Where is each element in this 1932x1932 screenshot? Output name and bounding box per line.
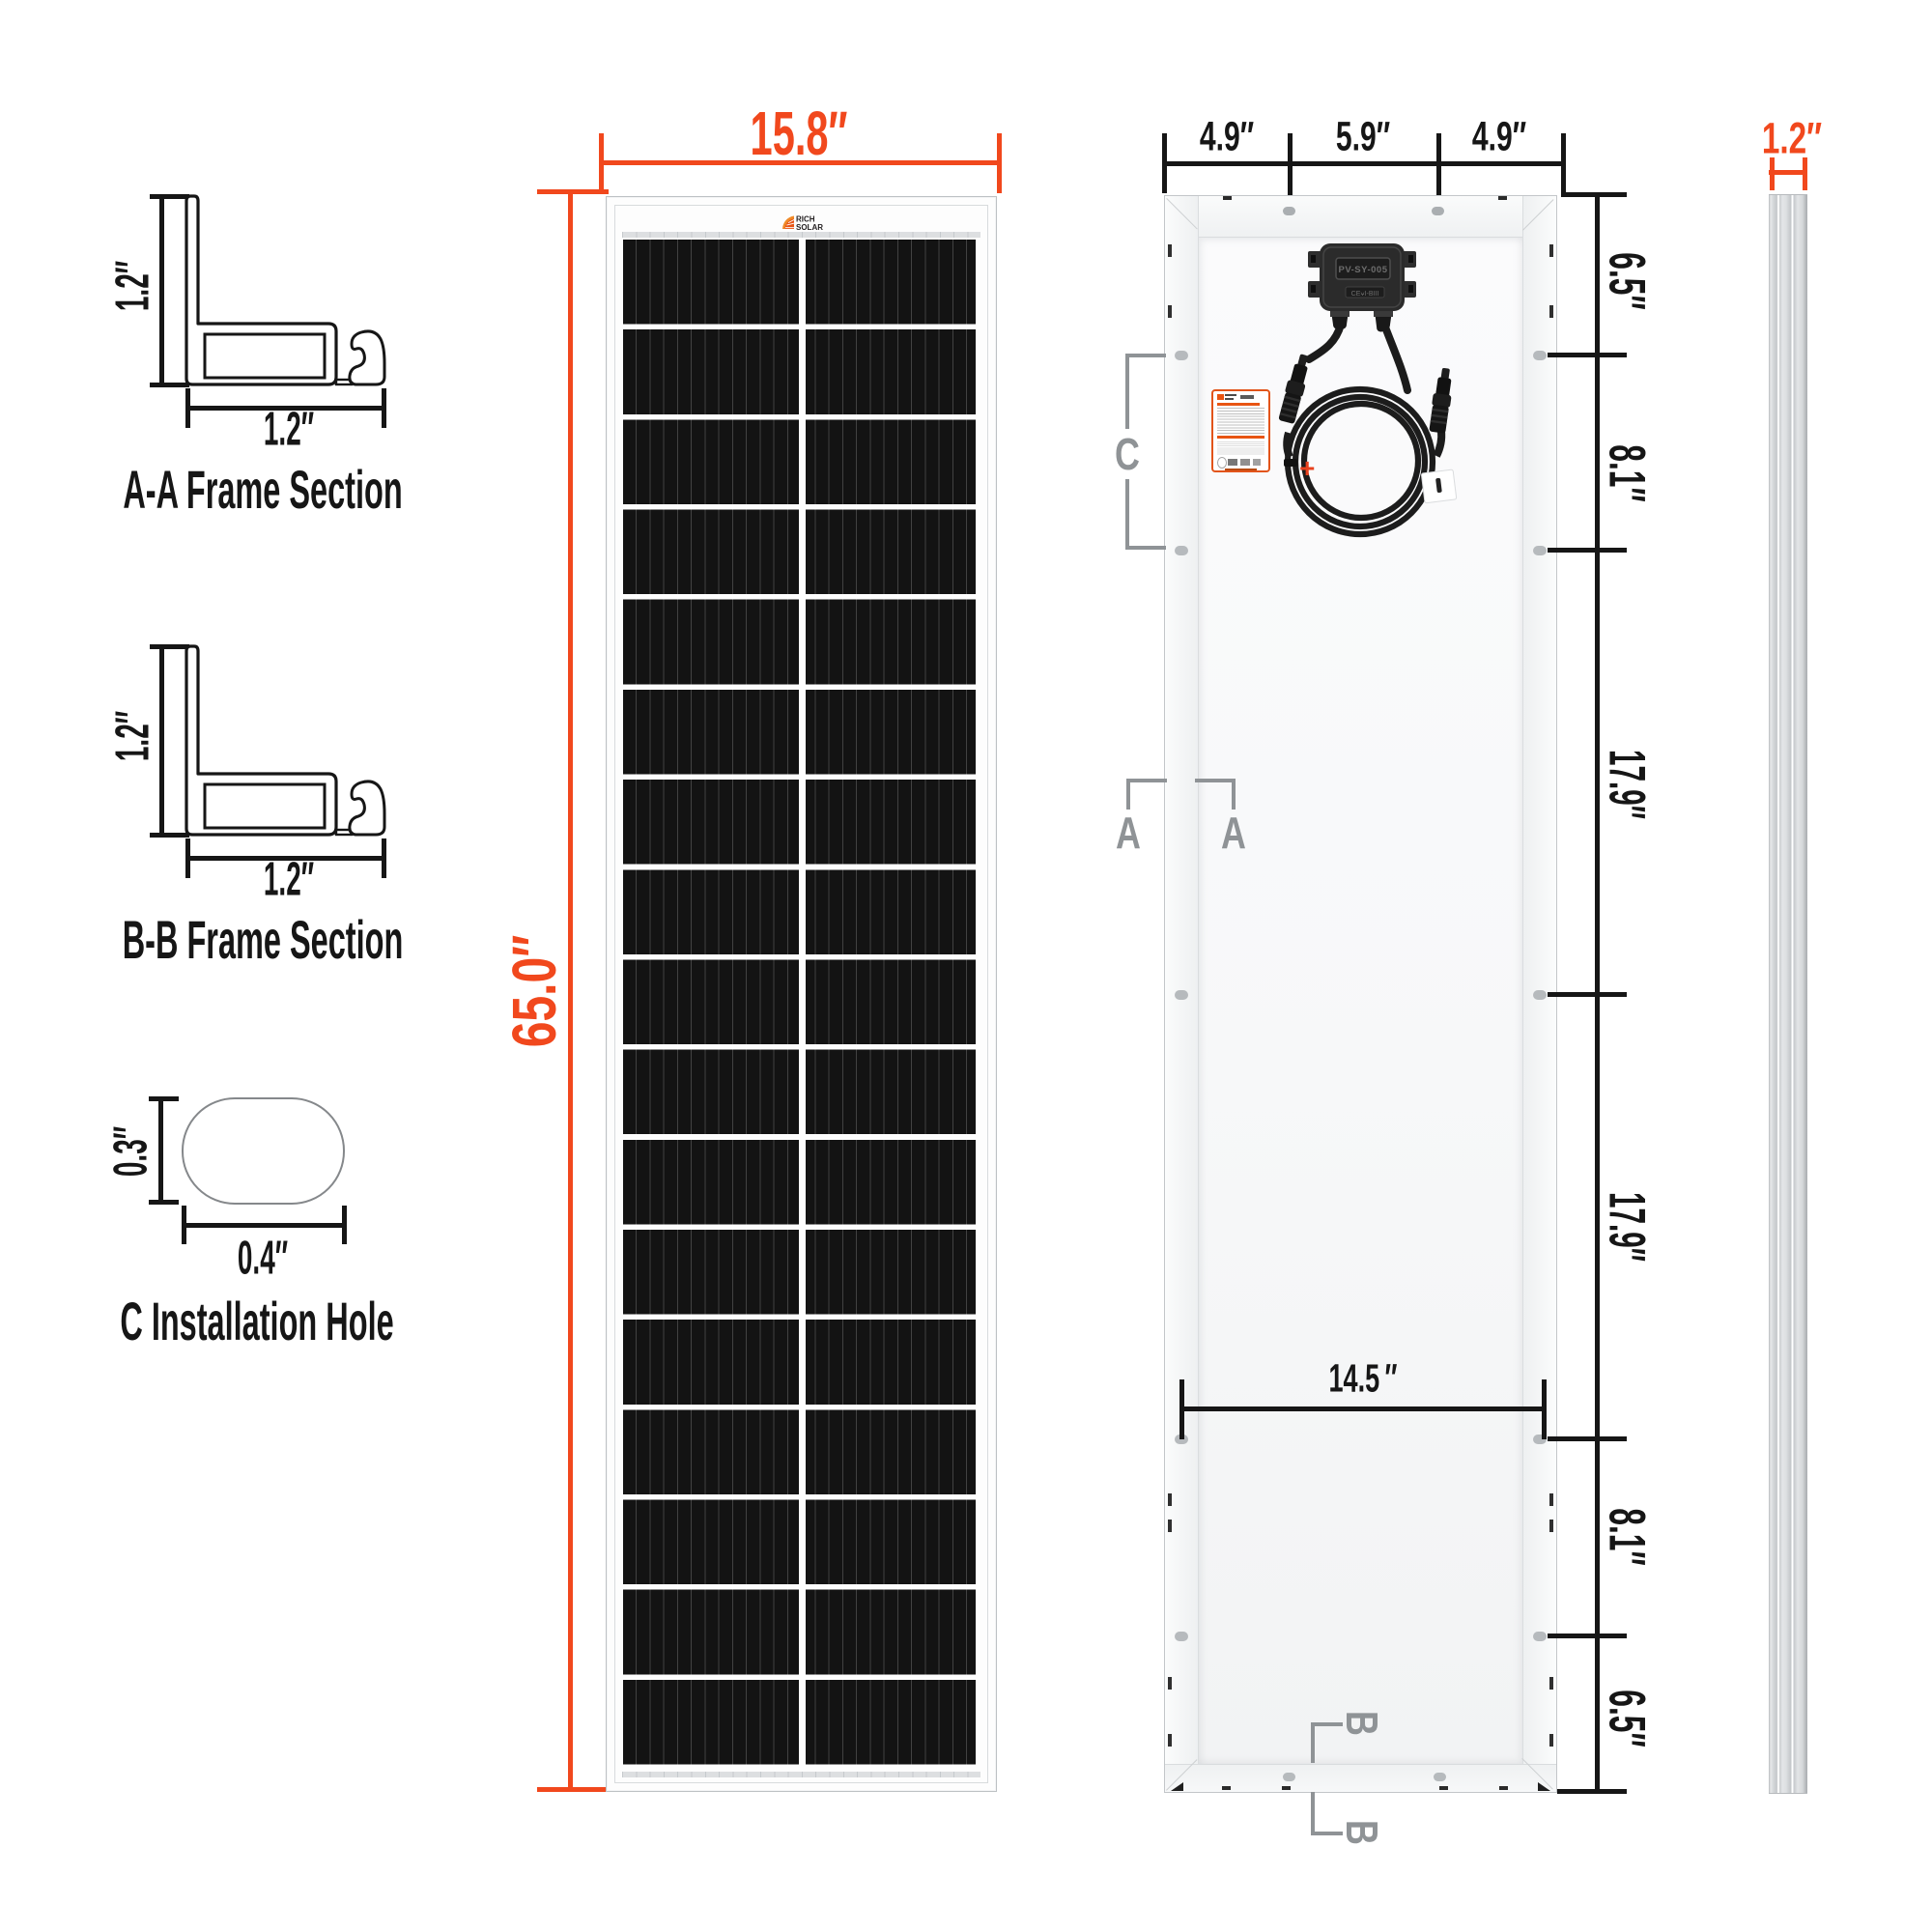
svg-text:PV-SY-005: PV-SY-005 <box>1339 265 1388 275</box>
svg-text:SOLAR: SOLAR <box>796 223 823 231</box>
svg-text:+: + <box>1299 453 1315 483</box>
svg-text:CE⍱I-BIII: CE⍱I-BIII <box>1351 291 1379 298</box>
